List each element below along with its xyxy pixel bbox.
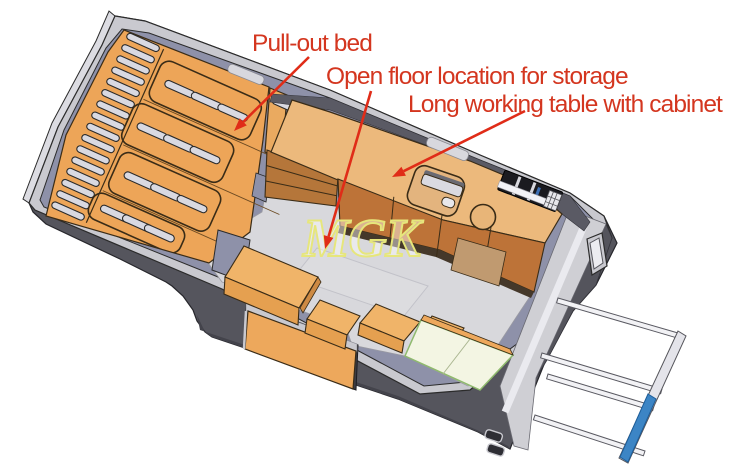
svg-text:Pull-out bed: Pull-out bed (252, 30, 372, 57)
svg-text:Open floor location for storag: Open floor location for storage (326, 63, 628, 90)
svg-text:Long working table with cabine: Long working table with cabinet (408, 91, 723, 118)
svg-text:MGK: MGK (302, 208, 424, 268)
